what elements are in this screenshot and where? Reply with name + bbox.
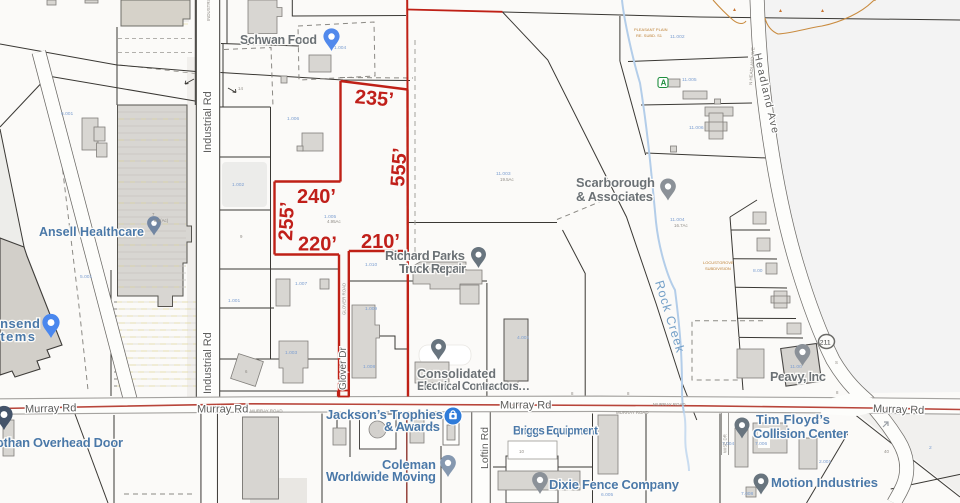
svg-text:6.001: 6.001 xyxy=(61,111,74,117)
svg-text:SUBDIVISION: SUBDIVISION xyxy=(705,266,731,271)
svg-text:5.001: 5.001 xyxy=(80,274,93,280)
svg-text:11.002: 11.002 xyxy=(670,34,685,40)
svg-text:1.002: 1.002 xyxy=(232,182,245,188)
svg-text:Worldwide Moving: Worldwide Moving xyxy=(326,469,436,484)
svg-text:235’: 235’ xyxy=(354,86,395,111)
svg-text:40: 40 xyxy=(884,449,889,454)
svg-text:Murray Rd: Murray Rd xyxy=(500,400,551,412)
svg-text:Briggs Equipment: Briggs Equipment xyxy=(513,426,598,438)
svg-text:Scarborough: Scarborough xyxy=(576,175,655,190)
svg-text:S: S xyxy=(835,360,838,365)
svg-text:Collision Center: Collision Center xyxy=(753,426,848,441)
svg-text:INDUSTRIAL RD: INDUSTRIAL RD xyxy=(206,0,211,21)
svg-text:Industrial Rd: Industrial Rd xyxy=(202,332,214,394)
svg-text:1.006: 1.006 xyxy=(287,116,300,122)
svg-text:1.009: 1.009 xyxy=(365,306,378,312)
svg-text:240’: 240’ xyxy=(297,186,336,208)
svg-text:Industrial Rd: Industrial Rd xyxy=(202,91,214,153)
svg-text:16.7Ac: 16.7Ac xyxy=(674,223,688,228)
svg-text:LOCUSTGROVE: LOCUSTGROVE xyxy=(703,260,734,265)
svg-text:Peavy, Inc: Peavy, Inc xyxy=(770,369,826,384)
svg-text:11.00: 11.00 xyxy=(790,364,802,370)
svg-text:Glover Dr: Glover Dr xyxy=(338,347,349,390)
svg-text:8.9(Ac): 8.9(Ac) xyxy=(154,218,169,223)
svg-text:Ansell Healthcare: Ansell Healthcare xyxy=(39,225,144,239)
svg-text:Electrical Contractors…: Electrical Contractors… xyxy=(417,379,530,393)
svg-text:Tim Floyd’s: Tim Floyd’s xyxy=(756,412,830,427)
svg-text:& Awards: & Awards xyxy=(384,419,440,434)
svg-text:1.003: 1.003 xyxy=(285,350,298,356)
svg-text:4.001: 4.001 xyxy=(517,335,530,341)
svg-text:14: 14 xyxy=(238,86,243,91)
svg-text:8.00: 8.00 xyxy=(753,268,763,274)
svg-text:7.008: 7.008 xyxy=(741,491,754,497)
svg-text:2.001: 2.001 xyxy=(819,459,832,465)
svg-text:Schwan Food: Schwan Food xyxy=(240,33,317,47)
svg-text:othan Overhead Door: othan Overhead Door xyxy=(0,435,123,450)
svg-text:1.008: 1.008 xyxy=(363,364,376,370)
svg-text:11.005: 11.005 xyxy=(682,77,697,83)
svg-text:4.95Ac: 4.95Ac xyxy=(327,219,341,224)
svg-text:6.005: 6.005 xyxy=(601,492,614,498)
svg-text:Murray Rd: Murray Rd xyxy=(25,402,77,415)
svg-text:Loftin Rd: Loftin Rd xyxy=(479,427,491,469)
svg-text:Murray Rd: Murray Rd xyxy=(197,404,248,416)
svg-text:11.006: 11.006 xyxy=(689,125,704,131)
svg-text:19.5Ac: 19.5Ac xyxy=(500,177,514,182)
svg-text:1.001: 1.001 xyxy=(228,298,241,304)
svg-text:1.007: 1.007 xyxy=(295,281,308,287)
svg-text:2: 2 xyxy=(929,445,932,451)
svg-text:& Associates: & Associates xyxy=(576,189,653,204)
svg-text:Systems: Systems xyxy=(0,329,35,344)
svg-text:MURRAY ROAD: MURRAY ROAD xyxy=(250,409,283,414)
svg-text:1.010: 1.010 xyxy=(365,262,378,268)
svg-text:555’: 555’ xyxy=(387,147,412,187)
svg-text:WISE DR: WISE DR xyxy=(723,434,728,453)
svg-text:GLOVER ROAD: GLOVER ROAD xyxy=(342,283,347,315)
svg-text:211: 211 xyxy=(820,339,831,346)
svg-text:7.006: 7.006 xyxy=(755,441,768,447)
svg-text:Dixie Fence Company: Dixie Fence Company xyxy=(549,477,680,492)
svg-text:220’: 220’ xyxy=(298,234,337,256)
svg-text:1.004: 1.004 xyxy=(334,45,347,51)
svg-text:10: 10 xyxy=(519,449,524,454)
svg-text:Truck Repair: Truck Repair xyxy=(399,261,466,276)
svg-text:Motion Industries: Motion Industries xyxy=(771,475,878,490)
svg-text:MURRAY ROAD: MURRAY ROAD xyxy=(616,410,649,415)
svg-text:RE. SUBD. S1: RE. SUBD. S1 xyxy=(636,33,663,38)
svg-text:255’: 255’ xyxy=(275,201,299,241)
svg-text:A: A xyxy=(661,79,667,88)
svg-text:PLEASANT PLAIN: PLEASANT PLAIN xyxy=(634,27,668,32)
svg-text:Murray Rd: Murray Rd xyxy=(873,403,925,417)
svg-text:MURRAY ROAD: MURRAY ROAD xyxy=(653,402,686,407)
